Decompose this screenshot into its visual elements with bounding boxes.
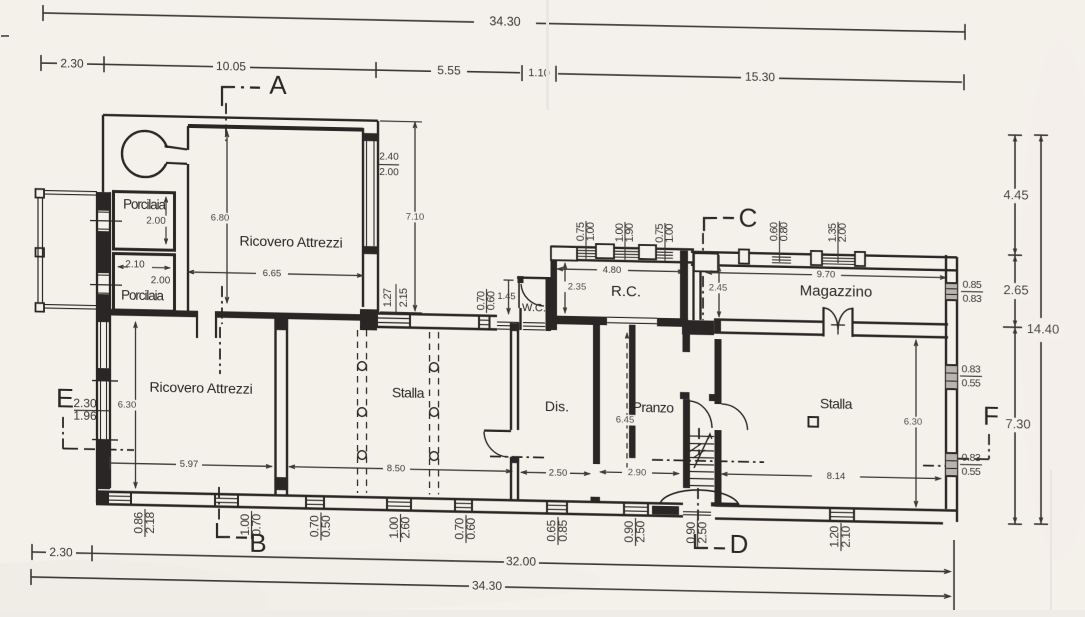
svg-text:10.05: 10.05 xyxy=(216,59,246,74)
svg-text:5.55: 5.55 xyxy=(437,63,461,77)
svg-text:0.80: 0.80 xyxy=(778,222,790,241)
svg-text:15.30: 15.30 xyxy=(745,70,775,85)
svg-text:Pranzo: Pranzo xyxy=(633,399,675,416)
svg-text:2.00: 2.00 xyxy=(151,275,171,286)
svg-text:W.C.: W.C. xyxy=(522,302,546,314)
svg-text:2.90: 2.90 xyxy=(628,467,646,478)
svg-text:Dis.: Dis. xyxy=(545,398,569,415)
svg-text:0.55: 0.55 xyxy=(962,466,981,478)
svg-text:1.27: 1.27 xyxy=(382,288,394,307)
svg-text:2.15: 2.15 xyxy=(398,288,410,307)
svg-text:6.30: 6.30 xyxy=(904,416,922,427)
svg-text:0.55: 0.55 xyxy=(962,377,981,389)
svg-text:2.35: 2.35 xyxy=(568,281,586,292)
svg-text:A: A xyxy=(269,70,287,100)
svg-text:0.83: 0.83 xyxy=(962,452,981,464)
svg-text:8.50: 8.50 xyxy=(387,463,405,474)
svg-text:34.30: 34.30 xyxy=(472,578,502,593)
svg-text:7.30: 7.30 xyxy=(1005,416,1030,432)
svg-text:F: F xyxy=(983,401,999,431)
svg-text:2.10: 2.10 xyxy=(125,259,145,270)
svg-text:6.45: 6.45 xyxy=(616,414,634,425)
svg-text:2.00: 2.00 xyxy=(837,223,849,242)
svg-text:0.85: 0.85 xyxy=(963,279,982,291)
svg-text:Porcilaia: Porcilaia xyxy=(121,288,164,304)
svg-text:1.90: 1.90 xyxy=(624,223,636,242)
svg-text:32.00: 32.00 xyxy=(506,554,536,569)
svg-text:2.45: 2.45 xyxy=(709,282,727,293)
svg-text:4.45: 4.45 xyxy=(1003,187,1028,203)
svg-text:6.80: 6.80 xyxy=(211,212,229,223)
svg-text:14.40: 14.40 xyxy=(1027,321,1060,337)
svg-text:Stalla: Stalla xyxy=(392,384,425,401)
svg-text:2.40: 2.40 xyxy=(379,151,399,162)
svg-text:4.80: 4.80 xyxy=(603,265,621,276)
svg-text:R.C.: R.C. xyxy=(611,283,641,301)
svg-text:1.45: 1.45 xyxy=(497,291,515,301)
svg-text:E: E xyxy=(56,383,74,413)
svg-text:9.70: 9.70 xyxy=(817,269,835,280)
svg-text:1.00: 1.00 xyxy=(585,222,597,241)
svg-text:6.65: 6.65 xyxy=(263,268,281,279)
svg-text:7.10: 7.10 xyxy=(406,211,424,222)
svg-text:5.97: 5.97 xyxy=(180,459,198,470)
svg-text:2.65: 2.65 xyxy=(1003,282,1028,298)
svg-text:C: C xyxy=(739,203,758,233)
svg-text:D: D xyxy=(730,529,749,559)
svg-text:2.30: 2.30 xyxy=(60,56,84,70)
svg-text:8.14: 8.14 xyxy=(827,471,845,482)
svg-text:34.30: 34.30 xyxy=(489,14,520,29)
svg-text:0.83: 0.83 xyxy=(963,293,982,305)
svg-text:2.00: 2.00 xyxy=(379,167,399,178)
svg-text:Magazzino: Magazzino xyxy=(800,282,873,301)
svg-text:0.60: 0.60 xyxy=(485,291,497,310)
svg-text:Ricovero Attrezzi: Ricovero Attrezzi xyxy=(149,380,252,398)
svg-text:6.30: 6.30 xyxy=(118,399,136,410)
svg-text:Ricovero Attrezzi: Ricovero Attrezzi xyxy=(239,234,342,252)
svg-text:2.50: 2.50 xyxy=(549,467,567,478)
svg-text:2.30: 2.30 xyxy=(49,545,73,559)
svg-text:Porcilaia: Porcilaia xyxy=(123,197,166,213)
svg-text:1.00: 1.00 xyxy=(664,223,676,242)
svg-text:2.00: 2.00 xyxy=(146,215,166,226)
svg-text:Stalla: Stalla xyxy=(820,395,853,412)
svg-text:0.83: 0.83 xyxy=(962,363,981,375)
svg-text:1.96: 1.96 xyxy=(73,408,97,422)
